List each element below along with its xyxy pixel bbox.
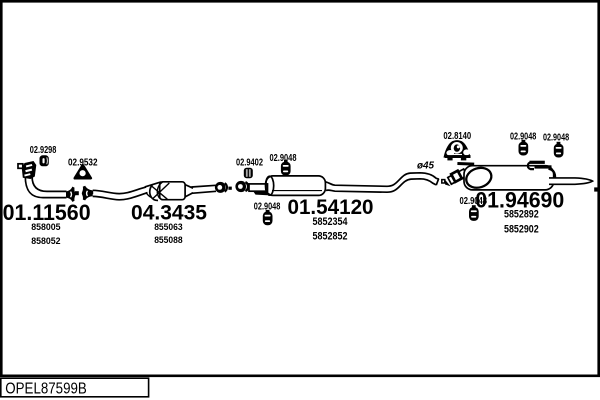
svg-text:ø45: ø45 (417, 159, 434, 171)
svg-text:5852852: 5852852 (313, 230, 348, 242)
svg-text:OPEL87599B: OPEL87599B (5, 381, 87, 398)
svg-text:04.3435: 04.3435 (131, 201, 207, 225)
svg-text:02.9532: 02.9532 (68, 157, 98, 168)
svg-text:02.8140: 02.8140 (443, 131, 471, 142)
svg-text:01.11560: 01.11560 (3, 200, 91, 225)
svg-text:02.9402: 02.9402 (236, 157, 263, 168)
svg-text:855063: 855063 (154, 222, 183, 232)
svg-text:858052: 858052 (31, 236, 60, 246)
svg-text:855088: 855088 (154, 235, 183, 245)
svg-text:5852354: 5852354 (313, 216, 349, 228)
svg-text:02.9048: 02.9048 (254, 201, 281, 212)
svg-text:02.9048: 02.9048 (543, 132, 569, 143)
svg-text:858005: 858005 (31, 222, 60, 232)
svg-text:02.9048: 02.9048 (270, 153, 297, 164)
svg-text:5852902: 5852902 (504, 224, 539, 236)
svg-text:5852892: 5852892 (504, 209, 539, 221)
svg-text:02.9298: 02.9298 (30, 145, 57, 156)
svg-text:02.9048: 02.9048 (510, 132, 537, 143)
